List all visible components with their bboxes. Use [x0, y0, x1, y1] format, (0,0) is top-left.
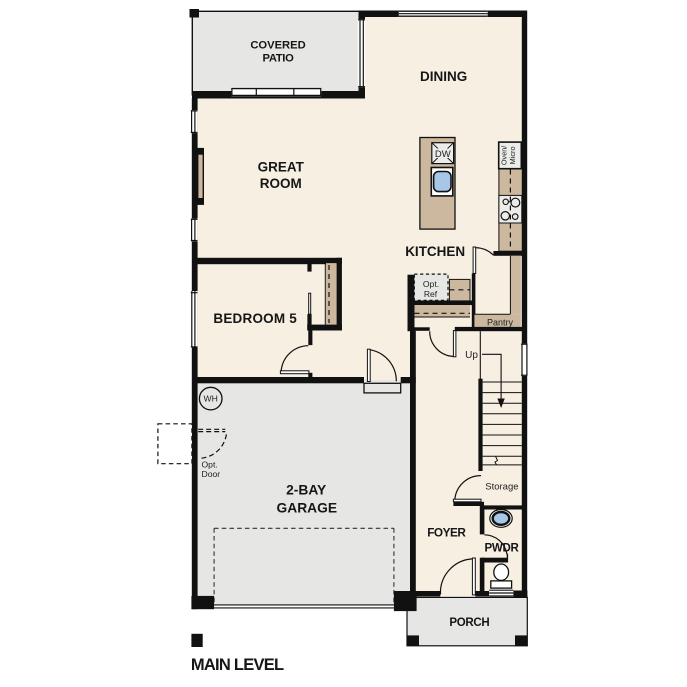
svg-text:Storage: Storage [485, 482, 518, 493]
svg-text:BEDROOM 5: BEDROOM 5 [213, 311, 297, 326]
svg-text:Micro: Micro [508, 146, 517, 164]
svg-text:COVERED: COVERED [250, 39, 305, 51]
svg-text:DW: DW [435, 149, 451, 160]
svg-text:Opt.: Opt. [423, 279, 439, 289]
svg-text:FOYER: FOYER [427, 526, 466, 540]
svg-text:ROOM: ROOM [260, 176, 302, 191]
svg-text:Up: Up [465, 350, 478, 361]
svg-text:Ref: Ref [424, 289, 438, 299]
svg-text:GREAT: GREAT [258, 159, 305, 174]
svg-text:PWDR: PWDR [485, 543, 520, 555]
svg-text:PORCH: PORCH [449, 617, 489, 629]
svg-text:GARAGE: GARAGE [277, 500, 338, 515]
svg-text:Pantry: Pantry [487, 318, 514, 328]
svg-text:DINING: DINING [420, 69, 467, 84]
svg-text:Door: Door [202, 469, 221, 479]
svg-text:2-BAY: 2-BAY [286, 483, 326, 498]
svg-text:WH: WH [204, 394, 218, 404]
svg-text:KITCHEN: KITCHEN [405, 244, 465, 259]
svg-text:MAIN LEVEL: MAIN LEVEL [191, 656, 284, 674]
svg-text:PATIO: PATIO [262, 52, 294, 64]
